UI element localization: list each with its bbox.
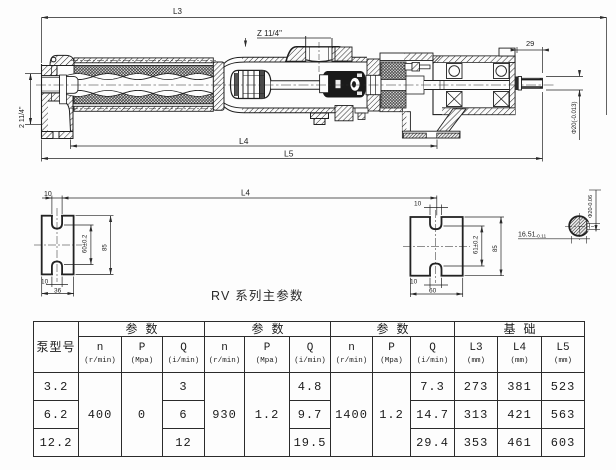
svg-text:85: 85: [103, 244, 109, 251]
svg-text:85: 85: [493, 245, 499, 252]
svg-text:L4: L4: [239, 136, 249, 146]
svg-text:2 11/4": 2 11/4": [19, 106, 26, 128]
svg-text:36: 36: [54, 288, 62, 295]
svg-text:60: 60: [429, 288, 437, 295]
svg-text:L5: L5: [284, 149, 294, 159]
svg-text:10: 10: [41, 279, 49, 286]
svg-text:60±0.2: 60±0.2: [83, 234, 89, 253]
svg-text:10: 10: [44, 191, 52, 198]
svg-text:L4: L4: [241, 189, 250, 198]
svg-text:Φ20(-0.013): Φ20(-0.013): [572, 102, 578, 134]
svg-text:10: 10: [414, 201, 422, 208]
svg-text:29: 29: [526, 39, 534, 48]
svg-text:L3: L3: [173, 7, 182, 16]
svg-text:10: 10: [410, 279, 418, 286]
svg-text:Z 11/4": Z 11/4": [257, 29, 282, 38]
svg-text:61±0.2: 61±0.2: [474, 235, 480, 254]
svg-text:16.51-0.11: 16.51-0.11: [518, 232, 546, 240]
svg-text:Φ20-0.06: Φ20-0.06: [588, 195, 594, 218]
